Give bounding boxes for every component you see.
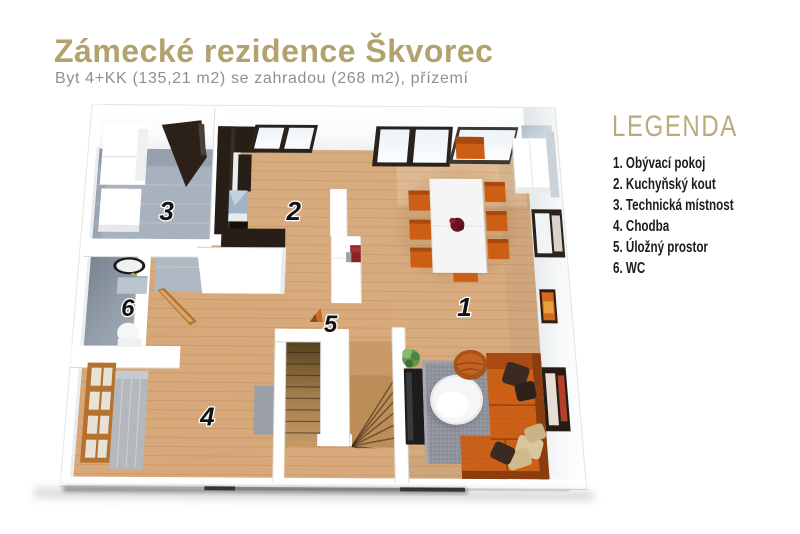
svg-text:3: 3: [159, 196, 174, 226]
svg-text:5: 5: [324, 311, 338, 338]
svg-text:4: 4: [199, 401, 215, 431]
svg-text:6: 6: [121, 295, 135, 322]
svg-text:2: 2: [286, 196, 302, 226]
svg-text:1: 1: [457, 292, 471, 322]
